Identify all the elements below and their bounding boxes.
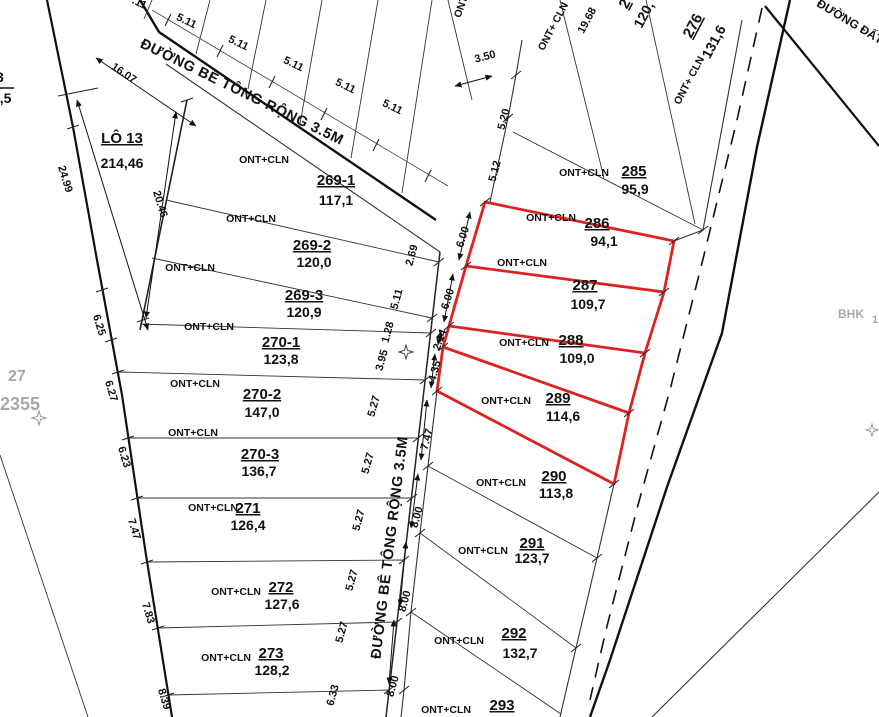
parcel-area: 95,9 [621,181,648,197]
top-strip-labels: ONT+ CLN 19.68 2 120, ONT [452,0,657,53]
dim-label: 5.20 [496,107,513,131]
red-outline [437,202,674,484]
parcel-292: ONT+CLN 292 132,7 [434,625,538,661]
parcel-289: ONT+CLN 289 114,6 [481,390,580,424]
dim-label: 5.11 [389,288,406,311]
dim-label: 5.11 [226,33,250,53]
parcel-270-3: ONT+CLN 270-3 136,7 [168,427,279,479]
parcel-code: 270-3 [241,446,279,463]
dim-label: 6.25 [90,313,108,337]
landuse-label: ONT+CLN [165,262,215,274]
dim-label: 8.39 [155,687,173,711]
parcel-code: 269-3 [285,287,323,304]
dim-label: 3.95 [374,348,391,372]
landuse-label: ONT+CLN [239,154,289,166]
dim-label: 5.11 [174,11,198,31]
survey-marker-stars [32,345,878,436]
parcel-273: ONT+CLN 273 128,2 [201,645,290,678]
dim-label: 5.27 [360,451,377,475]
parcel-area: 136,7 [241,463,276,479]
dirt-road-edges [560,0,879,717]
parcel-code: 269-2 [293,237,331,254]
parcel-code: 270-1 [262,334,300,351]
dim-label: 2.69 [404,243,421,267]
landuse-label: ONT+CLN [497,257,547,269]
parcel-code: 270-2 [243,386,281,403]
map-canvas: ĐƯỜNG BÊ TÔNG RỘNG 3.5M ĐƯỜNG BÊ TÔNG RỘ… [0,0,879,717]
dim-label: 5.27 [351,508,368,532]
parcel-code: 276 [680,11,707,41]
landuse-label: ONT+CLN [458,545,508,557]
landuse-label: ONT+CLN [526,212,576,224]
parcel-code: 286 [584,215,609,232]
landuse-label: ONT+CLN [476,477,526,489]
parcel-code: 271 [235,500,260,517]
dim-label: 8.00 [385,674,402,698]
parcel-288: ONT+CLN 288 109,0 [499,332,595,366]
parcel-270-1: ONT+CLN 270-1 123,8 [184,321,300,367]
parcel-area: 113,8 [539,485,573,501]
parcel-272: ONT+CLN 272 127,6 [211,579,300,612]
landuse-label: ONT+ CLN [536,0,571,52]
landuse-label: ONT+CLN [170,378,220,390]
dim-label: 5.27 [344,568,361,592]
parcel-code: LÔ 13 [101,129,143,147]
parcel-area: 123,7 [514,550,549,566]
parcel-area: 120,9 [286,304,321,320]
parcel-code: 269-1 [317,172,355,189]
landuse-label: ONT+CLN [184,321,234,333]
dim-label: 5.12 [487,159,504,183]
edge-partial-fraction: 3 3,5 [0,69,14,106]
landuse-label: ONT+CLN [188,502,238,514]
landuse-label: ONT+CLN [168,427,218,439]
dim-label: 3.50 [473,49,497,66]
parcel-code: 285 [621,163,646,180]
parcel-area: 123,8 [263,351,298,367]
parcel-area: 147,0 [244,404,279,420]
dim-label: 20.46 [150,189,170,219]
parcel-code: 287 [572,277,597,294]
parcel-270-2: ONT+CLN 270-2 147,0 [170,378,281,420]
landuse-label: ONT+CLN [434,635,484,647]
parcel-code: 292 [501,625,526,642]
dim-label: 6.27 [102,379,120,403]
parcel-area: 109,7 [570,296,605,312]
grey-annotations: 27 2355 BHK 1 [0,307,878,414]
dim-label: 5.11 [333,76,357,96]
parcel-286: ONT+CLN 286 94,1 [526,212,618,249]
parcel-code: 290 [541,468,566,485]
parcel-293: ONT+CLN 293 [421,697,514,716]
fraction-bottom: 3,5 [0,90,12,106]
parcel-area: 94,1 [590,233,617,249]
dim-label: 8.00 [409,505,426,529]
parcel-291: ONT+CLN 291 123,7 [458,535,550,566]
dim-label: 1.28 [380,320,397,344]
parcel-area: 131,6 [698,22,729,61]
star-icon [399,345,413,359]
annotation-bhk-partial: 1 [872,314,878,326]
dim-label: 24.99 [55,164,75,194]
landuse-label: ONT+CLN [201,652,251,664]
parcel-lot13: LÔ 13 214,46 [101,129,144,171]
parcel-area: 117,1 [319,192,353,208]
dim-label: 4.35 [427,359,444,383]
parcel-271: ONT+CLN 271 126,4 [188,500,266,533]
annotation-bhk: BHK [838,307,864,321]
road-label-middle: ĐƯỜNG BÊ TÔNG RỘNG 3.5M [366,435,411,660]
annotation-2355: 2355 [0,394,40,414]
parcel-269-3: ONT+CLN 269-3 120,9 [165,262,323,320]
landuse-label: ONT+CLN [421,704,471,716]
dim-label: 7.47 [419,427,436,451]
dim-label: 5.11 [281,54,305,74]
parcel-area: 128,2 [254,662,289,678]
parcel-area: 109,0 [559,350,594,366]
parcel-area: 114,6 [546,408,580,424]
parcel-code: 288 [558,332,583,349]
dim-label: 6.33 [325,683,342,707]
landuse-label-partial: ONT [452,0,471,19]
landuse-label: ONT+CLN [226,213,276,225]
road-centerline-dashed [590,8,762,700]
parcel-code: 289 [545,390,570,407]
parcel-290: ONT+CLN 290 113,8 [476,468,573,501]
parcel-code: 293 [489,697,514,714]
highlighted-parcels-outline [437,202,674,484]
parcel-area: 126,4 [230,517,265,533]
landuse-label: ONT+ CLN [672,54,707,106]
dim-label: 19.68 [576,6,600,36]
star-icon [866,424,878,436]
landuse-label: ONT+CLN [499,337,549,349]
red-divider-288-289 [443,347,629,413]
parcel-area: 132,7 [502,645,537,661]
landuse-label: ONT+CLN [211,586,261,598]
landuse-label: ONT+CLN [481,395,531,407]
parcel-269-2: ONT+CLN 269-2 120,0 [226,213,332,270]
red-divider-286-287 [466,266,664,292]
parcel-285: ONT+CLN 285 95,9 [559,163,649,197]
dim-label: 16.07 [109,61,139,86]
dim-label: 6.00 [454,225,472,249]
parcel-code: 272 [268,579,293,596]
landuse-label: ONT+CLN [559,167,609,179]
parcel-276: ONT+ CLN 276 131,6 [672,11,729,107]
parcel-287: ONT+CLN 287 109,7 [497,257,606,312]
parcel-area: 120,0 [296,254,331,270]
right-block-dividers [0,0,703,717]
parcel-code-partial: 2 [616,0,635,12]
parcel-code: 273 [258,645,283,662]
cadastral-map: ĐƯỜNG BÊ TÔNG RỘNG 3.5M ĐƯỜNG BÊ TÔNG RỘ… [0,0,879,717]
parcel-area: 214,46 [101,155,144,171]
dim-label: 5.27 [366,394,383,418]
fraction-top: 3 [0,69,4,85]
parcel-area: 127,6 [264,596,299,612]
parcel-269-1: ONT+CLN 269-1 117,1 [239,154,355,208]
dim-label: 5.11 [380,97,404,117]
road-label-dirt: ĐƯỜNG ĐẤT [814,0,879,47]
annotation-27: 27 [8,368,26,385]
